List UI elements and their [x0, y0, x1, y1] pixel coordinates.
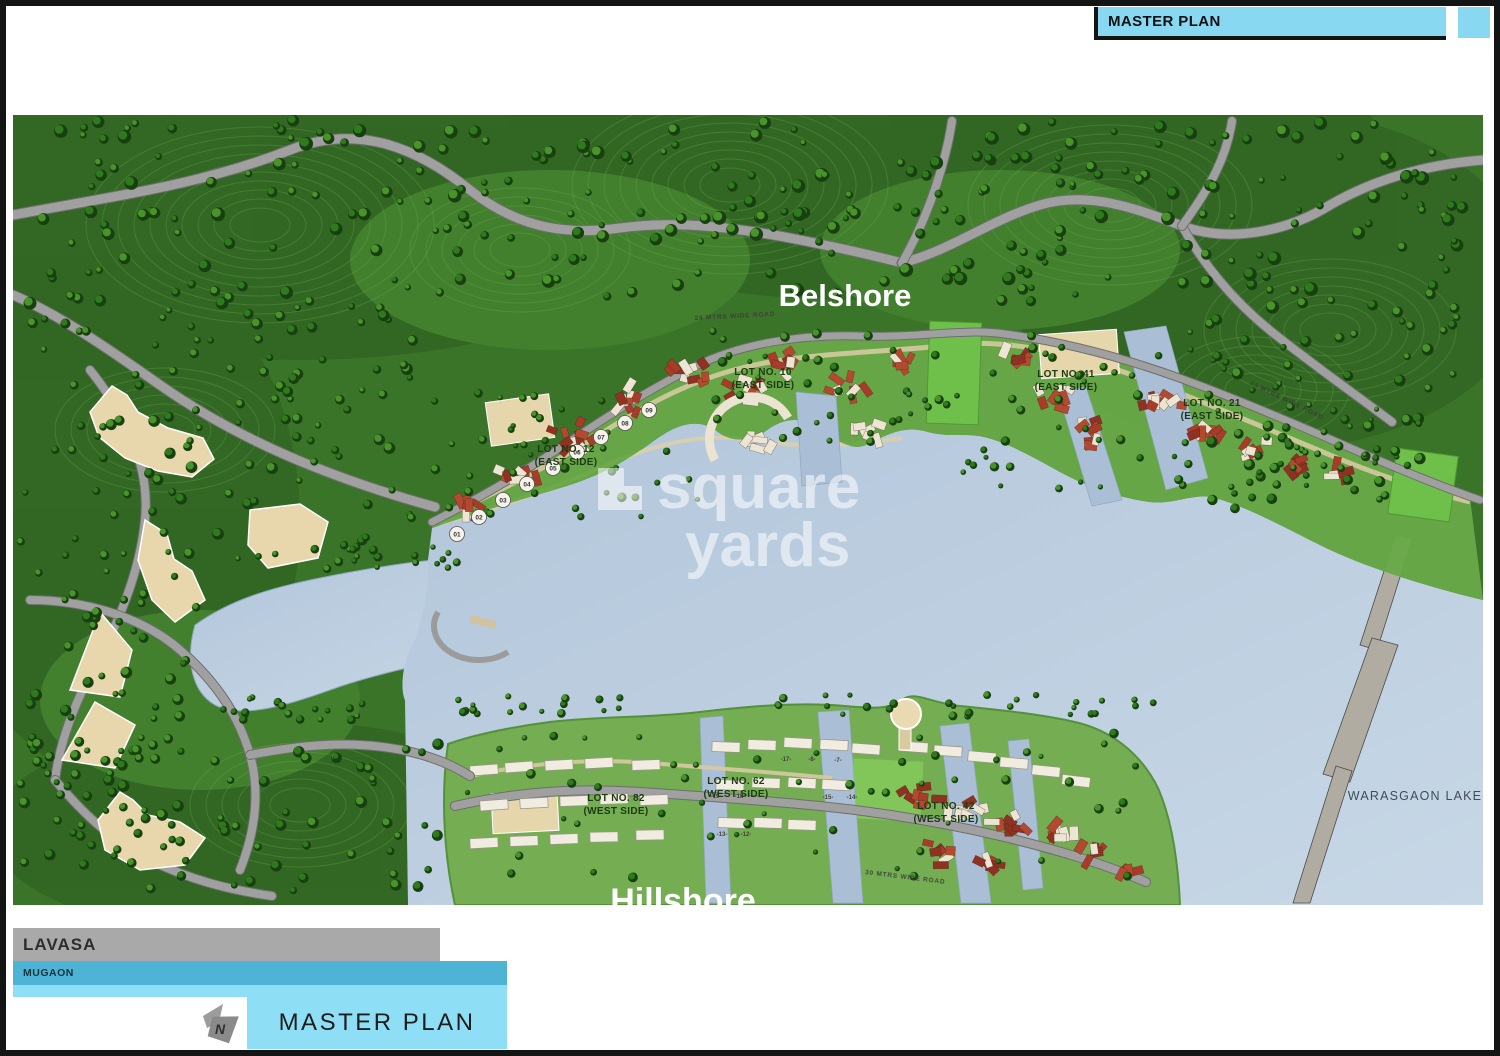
svg-text:03: 03: [499, 497, 507, 504]
lot-label-side: (WEST SIDE): [914, 814, 979, 825]
svg-text:09: 09: [645, 407, 653, 414]
building-number: -12-: [741, 832, 752, 838]
building-number: -8-: [808, 757, 815, 763]
project-name: LAVASA: [13, 935, 96, 955]
page-title: MASTER PLAN: [1098, 13, 1221, 30]
lot-label: LOT NO. 42: [917, 801, 975, 812]
lot-label-side: (EAST SIDE): [535, 457, 598, 468]
plot-marker: 02: [472, 510, 487, 525]
svg-text:07: 07: [597, 434, 605, 441]
squareyards-logo-icon: [598, 468, 624, 510]
plot-marker: 03: [496, 493, 511, 508]
lot-label-side: (EAST SIDE): [732, 380, 795, 391]
building-number: -13-: [717, 832, 728, 838]
legend-project-bar: LAVASA: [13, 928, 440, 961]
building-number: -7-: [834, 758, 841, 764]
building-number: -15-: [823, 795, 834, 801]
belshore-label: Belshore: [779, 278, 912, 313]
lot-label: LOT NO. 82: [587, 793, 645, 804]
building-number: -14-: [847, 795, 858, 801]
svg-text:01: 01: [453, 531, 461, 538]
legend-location-bar: MUGAON: [13, 961, 507, 985]
svg-text:08: 08: [621, 420, 629, 427]
compass-icon: N: [193, 1002, 245, 1050]
hillshore-peninsula: [444, 696, 1180, 905]
lot-label-side: (EAST SIDE): [1181, 411, 1244, 422]
lot-label-side: (WEST SIDE): [584, 806, 649, 817]
plot-marker: 04: [520, 477, 535, 492]
header-bar: MASTER PLAN: [1094, 7, 1446, 40]
plot-marker: 01: [450, 527, 465, 542]
svg-text:02: 02: [475, 514, 483, 521]
masterplan-map: 010203040506070809 -8--7--17--15--14--19…: [0, 0, 1500, 1056]
squareyards-logo-icon: [624, 486, 642, 510]
lake-label: WARASGAON LAKE: [1348, 789, 1482, 803]
lot-label: LOT NO. 12: [537, 444, 595, 455]
plot-marker: 09: [642, 403, 657, 418]
watermark-word: yards: [685, 511, 850, 580]
lot-label: LOT NO. 21: [1183, 398, 1241, 409]
svg-text:04: 04: [523, 481, 531, 488]
lot-label: LOT NO. 41: [1037, 369, 1095, 380]
legend-plan-title: MASTER PLAN: [247, 997, 507, 1049]
lot-label: LOT NO. 10: [734, 367, 792, 378]
lot-label-side: (EAST SIDE): [1035, 382, 1098, 393]
compass-letter: N: [215, 1021, 226, 1037]
lot-label-side: (WEST SIDE): [704, 789, 769, 800]
building-number: -17-: [781, 757, 792, 763]
header-accent-square: [1458, 7, 1490, 38]
plot-marker: 07: [594, 430, 609, 445]
lot-label: LOT NO. 62: [707, 776, 765, 787]
masterplan-page: 010203040506070809 -8--7--17--15--14--19…: [0, 0, 1500, 1056]
plot-marker: 08: [618, 416, 633, 431]
location-name: MUGAON: [13, 967, 74, 979]
